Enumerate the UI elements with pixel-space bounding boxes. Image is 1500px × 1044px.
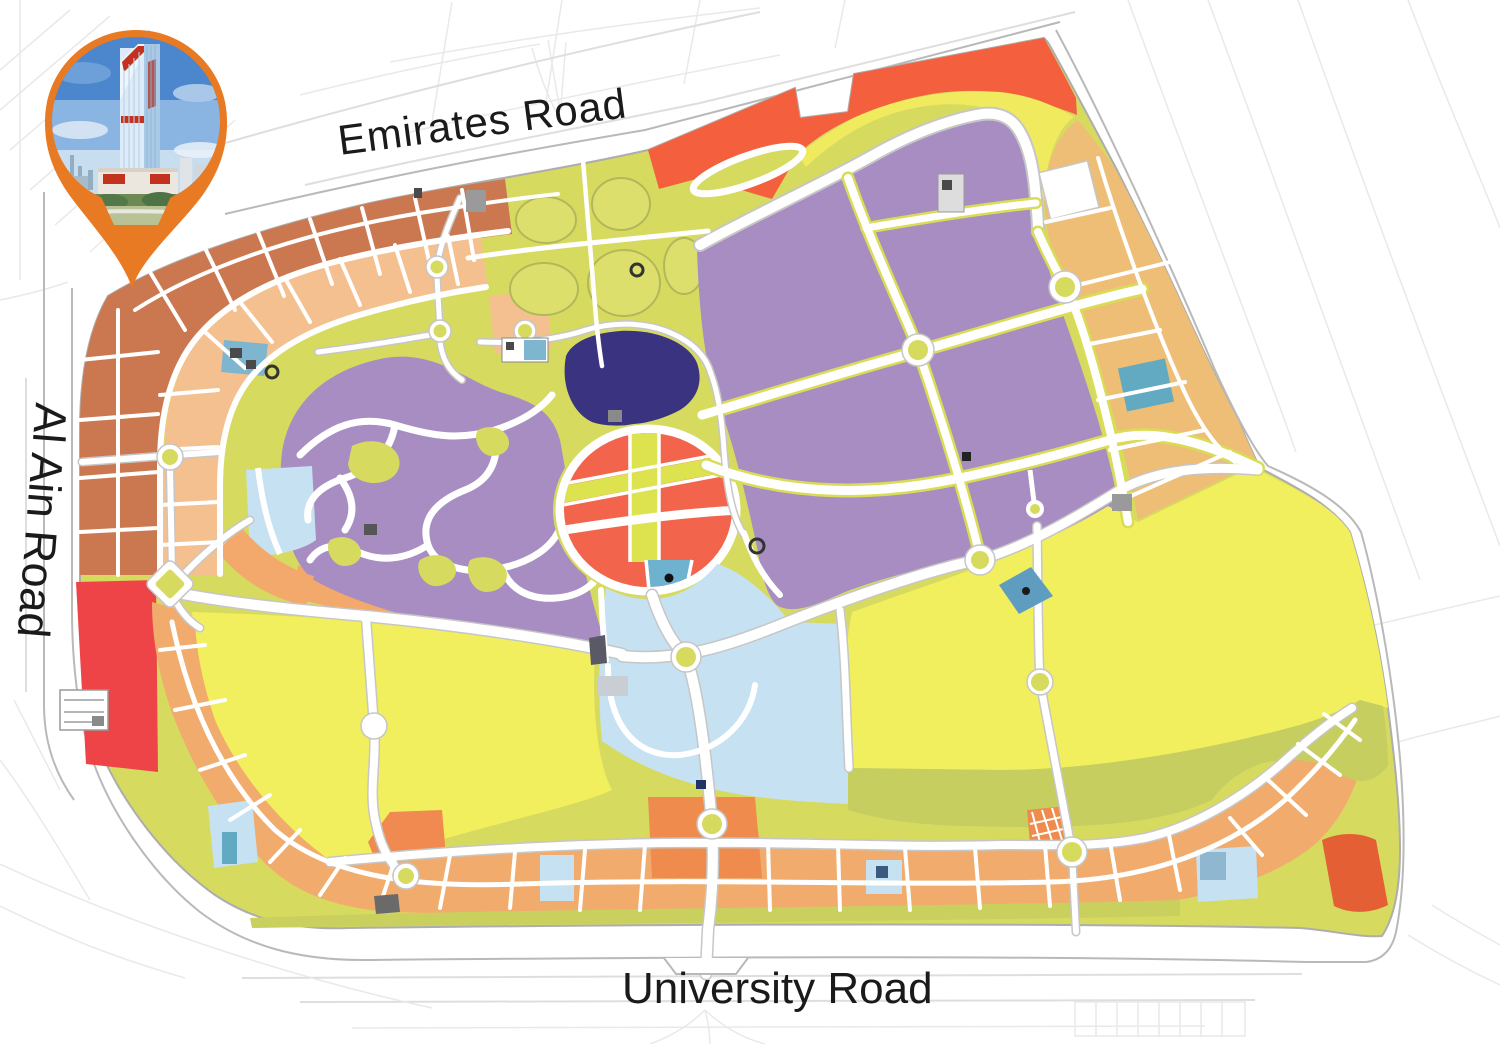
svg-text:University Road: University Road <box>622 964 933 1013</box>
